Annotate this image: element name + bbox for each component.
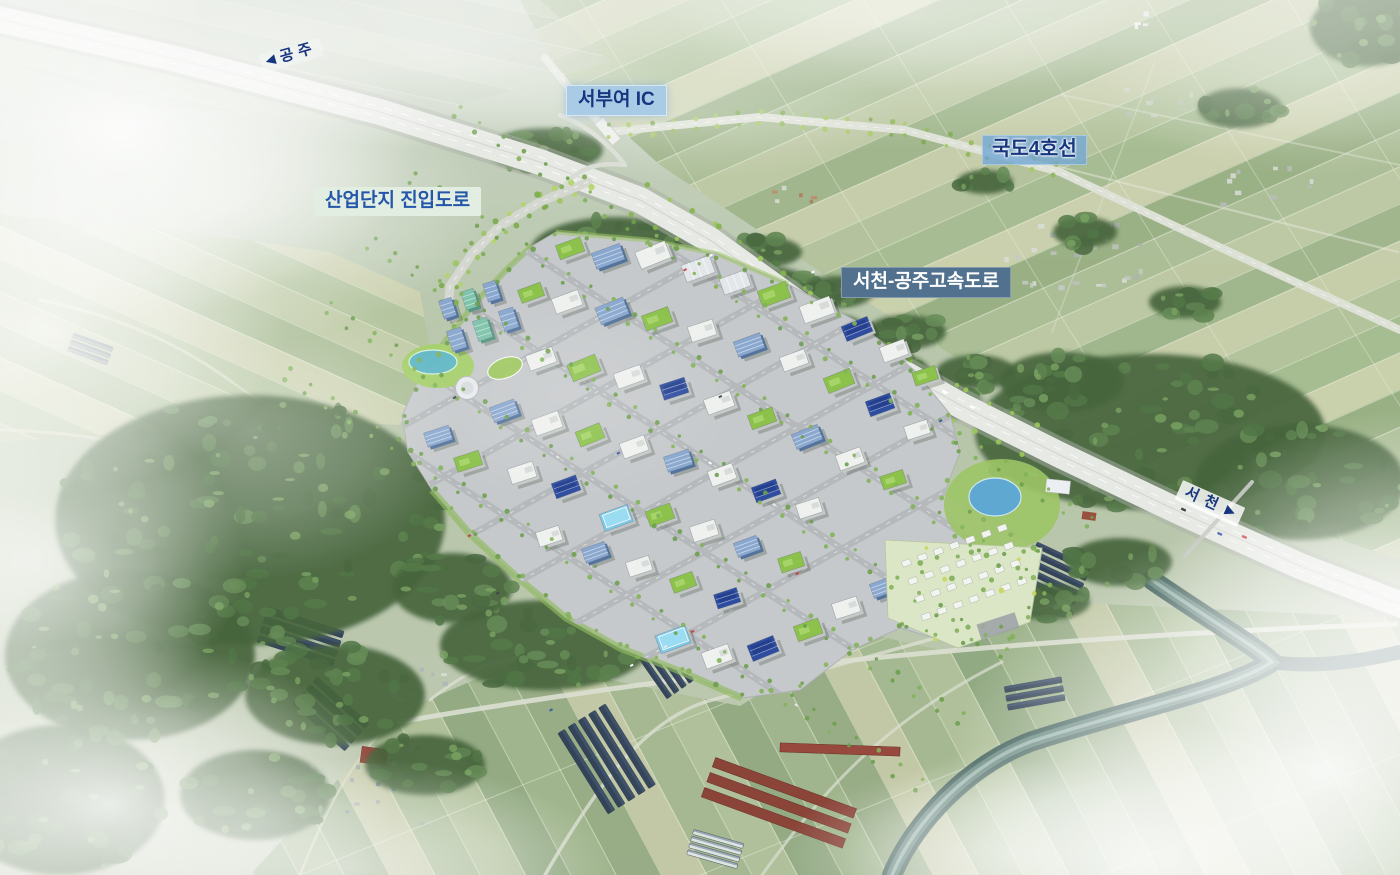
seobuyeo-ic-label: 서부여 IC bbox=[566, 85, 667, 116]
left-arrow-icon: ◀ bbox=[263, 51, 277, 68]
expressway-label: 서천-공주고속도로 bbox=[841, 267, 1011, 298]
aerial-birdseye-rendering: ◀공주 서부여 IC 국도4호선 산업단지 진입도로 서천-공주고속도로 서천▶ bbox=[0, 0, 1400, 875]
scene-svg bbox=[0, 0, 1400, 875]
national-route4-label: 국도4호선 bbox=[982, 135, 1087, 165]
farm-shed bbox=[1045, 479, 1070, 494]
left-haze bbox=[0, 0, 210, 875]
access-road-label: 산업단지 진입도로 bbox=[314, 187, 481, 216]
east-pond bbox=[969, 478, 1021, 516]
